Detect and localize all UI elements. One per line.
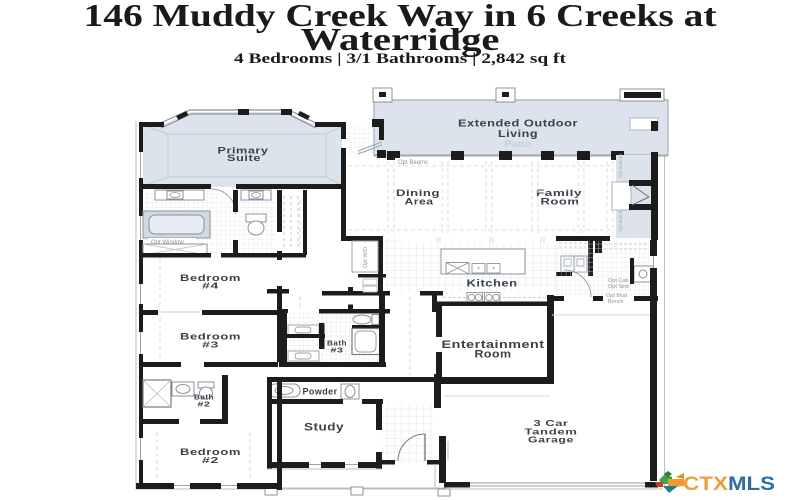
svg-text:Kitchen: Kitchen (467, 278, 518, 290)
svg-text:#3: #3 (331, 346, 344, 355)
svg-text:MLS: MLS (728, 474, 775, 495)
svg-text:#4: #4 (202, 281, 219, 291)
svg-text:#2: #2 (202, 455, 219, 465)
svg-text:Patio: Patio (505, 139, 533, 149)
svg-text:Study: Study (304, 422, 345, 434)
svg-text:Opt Built-Ins: Opt Built-Ins (618, 152, 623, 178)
svg-text:Opt Beams: Opt Beams (398, 160, 428, 166)
svg-text:Garage: Garage (528, 435, 574, 445)
svg-text:Opt W/D: Opt W/D (363, 247, 369, 268)
svg-text:#3: #3 (202, 340, 219, 350)
svg-text:Powder: Powder (303, 387, 338, 397)
svg-text:Extended Outdoor: Extended Outdoor (458, 119, 578, 130)
svg-text:4 Bedrooms | 3/1 Bathrooms | 2: 4 Bedrooms | 3/1 Bathrooms | 2,842 sq ft (234, 51, 566, 67)
svg-text:CTX: CTX (683, 474, 728, 495)
svg-text:Suite: Suite (227, 153, 261, 163)
svg-text:Room: Room (541, 197, 580, 208)
svg-text:#2: #2 (198, 400, 211, 409)
svg-text:Area: Area (405, 197, 434, 208)
svg-text:Opt Sink: Opt Sink (608, 284, 629, 290)
svg-text:Bench: Bench (608, 299, 624, 305)
svg-text:Room: Room (475, 349, 512, 361)
